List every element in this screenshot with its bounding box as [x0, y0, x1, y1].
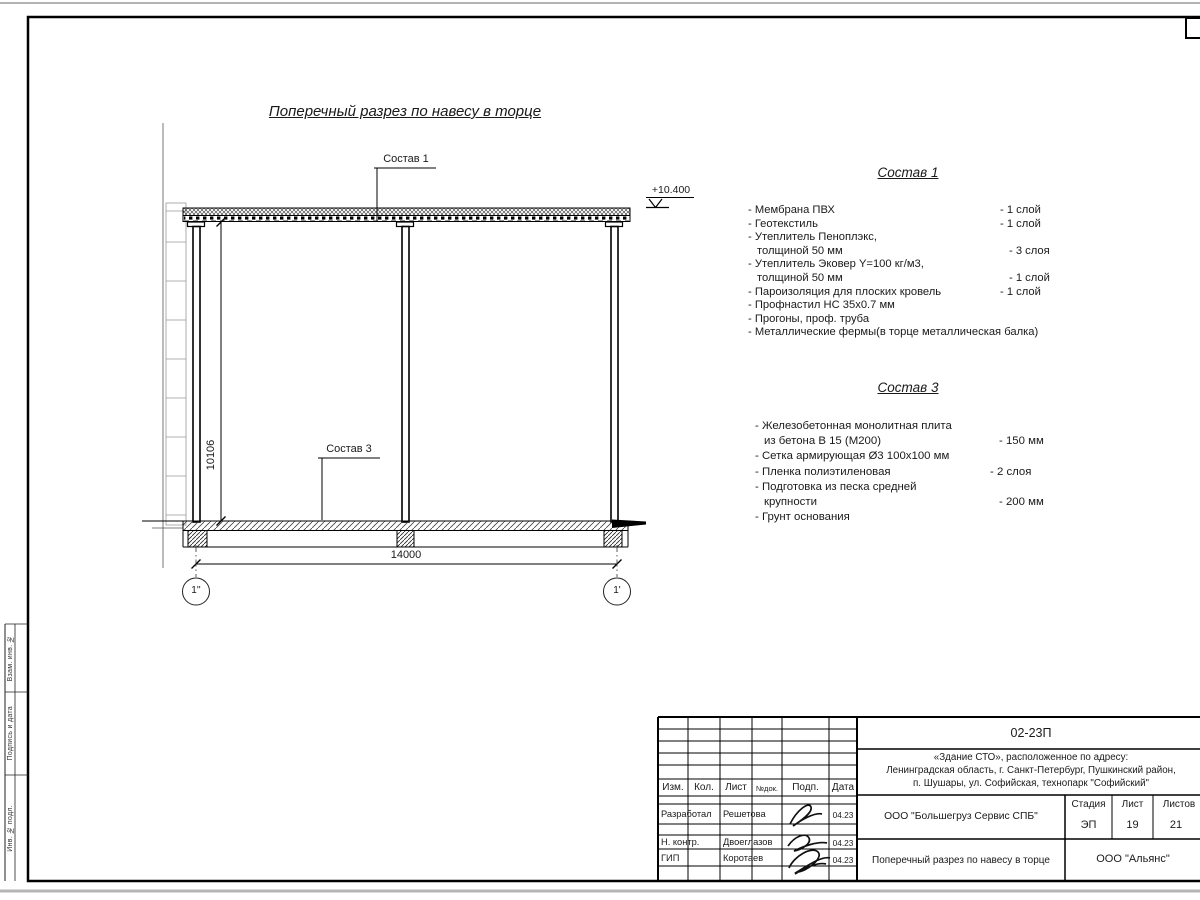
sostav1-heading: Состав 1 [858, 165, 958, 180]
drawing-title: Поперечный разрез по навесу в торце [265, 103, 545, 120]
name-developer: Решетова [723, 809, 766, 819]
material-row: толщиной 50 мм- 3 слоя [748, 245, 1092, 259]
col-izm: Изм. [658, 782, 688, 793]
date-ncontrol: 04.23 [829, 838, 857, 848]
company-name: ООО "Большегруз Сервис СПБ" [859, 811, 1063, 822]
signature-3 [789, 850, 830, 874]
org-name: ООО "Альянс" [1068, 853, 1198, 865]
material-row: - Железобетонная монолитная плита [755, 419, 1065, 434]
material-row: - Утеплитель Пеноплэкс, [748, 231, 1092, 245]
date-developer: 04.23 [829, 810, 857, 820]
material-row: - Грунт основания [755, 510, 1065, 525]
sheet-title: Поперечный разрез по навесу в торце [860, 855, 1062, 866]
material-row: - Мембрана ПВХ- 1 слой [748, 204, 1092, 218]
date-gip: 04.23 [829, 855, 857, 865]
material-row: - Металлические фермы(в торце металличес… [748, 326, 1092, 340]
sheet-label: Лист [1112, 799, 1153, 810]
stamp-strip-cell: Взам. инв. № [5, 624, 15, 692]
role-ncontrol: Н. контр. [661, 837, 699, 847]
stamp-strip-cell: Инв. № подл. [5, 775, 15, 881]
callout-sostav3-label: Состав 3 [318, 443, 380, 455]
col-podp: Подп. [782, 782, 829, 793]
elevation-mark-label: +10.400 [648, 184, 694, 196]
col-data: Дата [829, 782, 857, 793]
material-row: - Подготовка из песка средней [755, 480, 1065, 495]
material-row: - Прогоны, проф. труба [748, 313, 1092, 327]
axis-bubble-right-label: 1' [602, 585, 632, 596]
role-gip: ГИП [661, 853, 679, 863]
dim-width-label: 14000 [346, 549, 466, 561]
material-row: - Сетка армирующая Ø3 100х100 мм [755, 449, 1065, 464]
name-ncontrol: Двоеглазов [723, 837, 772, 847]
role-developer: Разработал [661, 809, 712, 819]
sheets-label: Листов [1153, 799, 1200, 810]
callout-sostav1-label: Состав 1 [375, 153, 437, 165]
material-row: - Пленка полиэтиленовая- 2 слоя [755, 465, 1065, 480]
stage-value: ЭП [1065, 819, 1112, 831]
dim-height-label: 10106 [205, 438, 217, 472]
object-address-line3: п. Шушары, ул. Софийская, технопарк "Соф… [862, 778, 1200, 789]
object-address-line1: «Здание СТО», расположенное по адресу: [862, 752, 1200, 763]
sheets-value: 21 [1153, 819, 1199, 831]
material-row: - Пароизоляция для плоских кровель- 1 сл… [748, 286, 1092, 300]
sostav3-list: - Железобетонная монолитная плита из бет… [755, 419, 1065, 525]
material-row: толщиной 50 мм- 1 слой [748, 272, 1092, 286]
name-gip: Коротаев [723, 853, 763, 863]
sostav1-list: - Мембрана ПВХ- 1 слой - Геотекстиль- 1 … [748, 204, 1092, 340]
material-row: - Утеплитель Эковер Y=100 кг/м3, [748, 258, 1092, 272]
sostav3-heading: Состав 3 [858, 380, 958, 395]
signature-1 [790, 805, 822, 826]
object-address-line2: Ленинградская область, г. Санкт-Петербур… [862, 765, 1200, 776]
doc-number: 02-23П [857, 726, 1200, 740]
stamp-strip-cell: Подпись и дата [5, 692, 15, 775]
stage-label: Стадия [1065, 799, 1112, 810]
col-list: Лист [720, 782, 752, 793]
material-row: - Геотекстиль- 1 слой [748, 218, 1092, 232]
drawing-sheet: Поперечный разрез по навесу в торце Сост… [0, 0, 1200, 900]
col-ndok: №док. [752, 784, 782, 793]
sheet-value: 19 [1112, 819, 1153, 831]
material-row: - Профнастил НС 35х0.7 мм [748, 299, 1092, 313]
material-row: крупности- 200 мм [755, 495, 1065, 510]
material-row: из бетона В 15 (М200)- 150 мм [755, 434, 1065, 449]
axis-bubble-left-label: 1'' [181, 585, 211, 596]
col-kol: Кол. [688, 782, 720, 793]
